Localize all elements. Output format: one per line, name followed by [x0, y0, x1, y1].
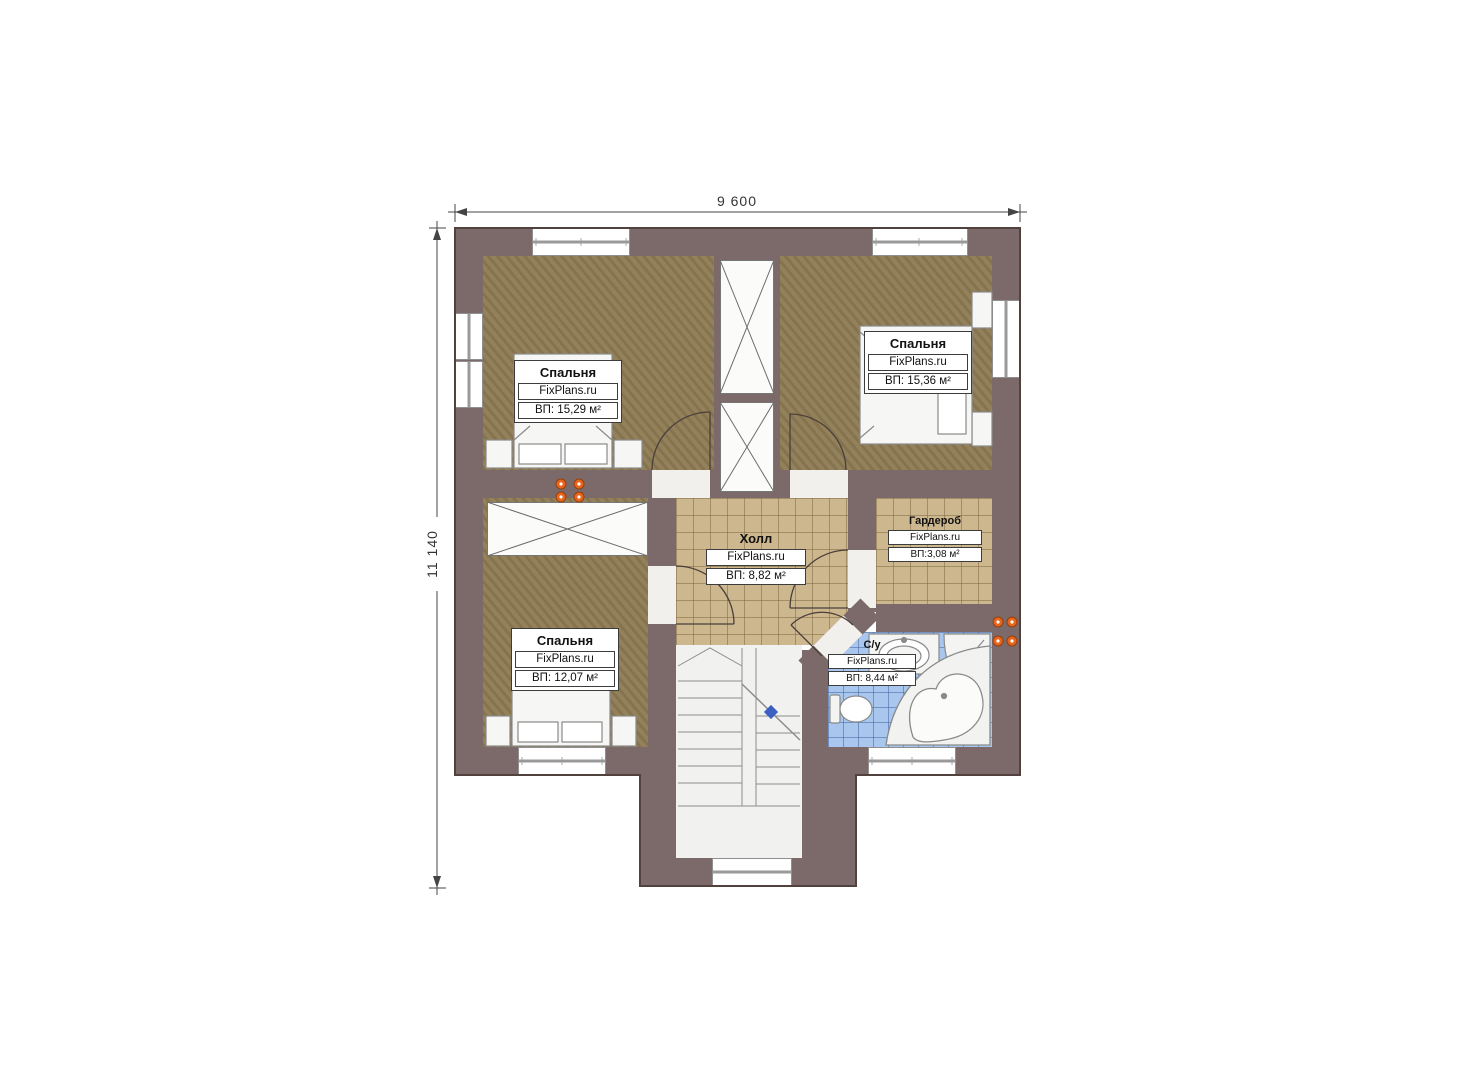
room-name: Гардероб: [888, 514, 982, 528]
toilet: [830, 695, 872, 723]
dimension-height-label: 11 140: [424, 517, 440, 591]
staircase: [678, 648, 800, 806]
room-label-bedroom-bottom-left: Спальня FixPlans.ru ВП: 12,07 м²: [511, 628, 619, 691]
room-area: ВП: 8,44 м²: [828, 671, 916, 686]
room-label-bedroom-top-right: Спальня FixPlans.ru ВП: 15,36 м²: [864, 331, 972, 394]
room-area: ВП:3,08 м²: [888, 547, 982, 562]
room-label-bathroom: С/у FixPlans.ru ВП: 8,44 м²: [828, 638, 916, 686]
room-name: Спальня: [518, 364, 618, 381]
room-area: ВП: 15,36 м²: [868, 373, 968, 390]
room-label-hall: Холл FixPlans.ru ВП: 8,82 м²: [706, 530, 806, 585]
radiator-icon: [993, 617, 1017, 646]
room-watermark: FixPlans.ru: [515, 651, 615, 668]
wardrobe-cabinet-icon: [487, 502, 648, 556]
room-area: ВП: 8,82 м²: [706, 568, 806, 585]
radiator-icon: [556, 479, 584, 502]
room-watermark: FixPlans.ru: [888, 530, 982, 545]
room-watermark: FixPlans.ru: [518, 383, 618, 400]
room-name: Спальня: [868, 335, 968, 352]
dimension-width-label: 9 600: [700, 193, 774, 209]
room-name: Спальня: [515, 632, 615, 649]
room-name: Холл: [706, 530, 806, 547]
room-label-wardrobe: Гардероб FixPlans.ru ВП:3,08 м²: [888, 514, 982, 562]
ventilation-shaft-icon: [720, 260, 774, 492]
room-watermark: FixPlans.ru: [828, 654, 916, 669]
room-area: ВП: 12,07 м²: [515, 670, 615, 687]
room-area: ВП: 15,29 м²: [518, 402, 618, 419]
room-watermark: FixPlans.ru: [706, 549, 806, 566]
room-watermark: FixPlans.ru: [868, 354, 968, 371]
room-label-bedroom-top-left: Спальня FixPlans.ru ВП: 15,29 м²: [514, 360, 622, 423]
room-name: С/у: [828, 638, 916, 652]
floor-plan-canvas: Спальня FixPlans.ru ВП: 15,29 м² Спальня…: [0, 0, 1474, 1080]
